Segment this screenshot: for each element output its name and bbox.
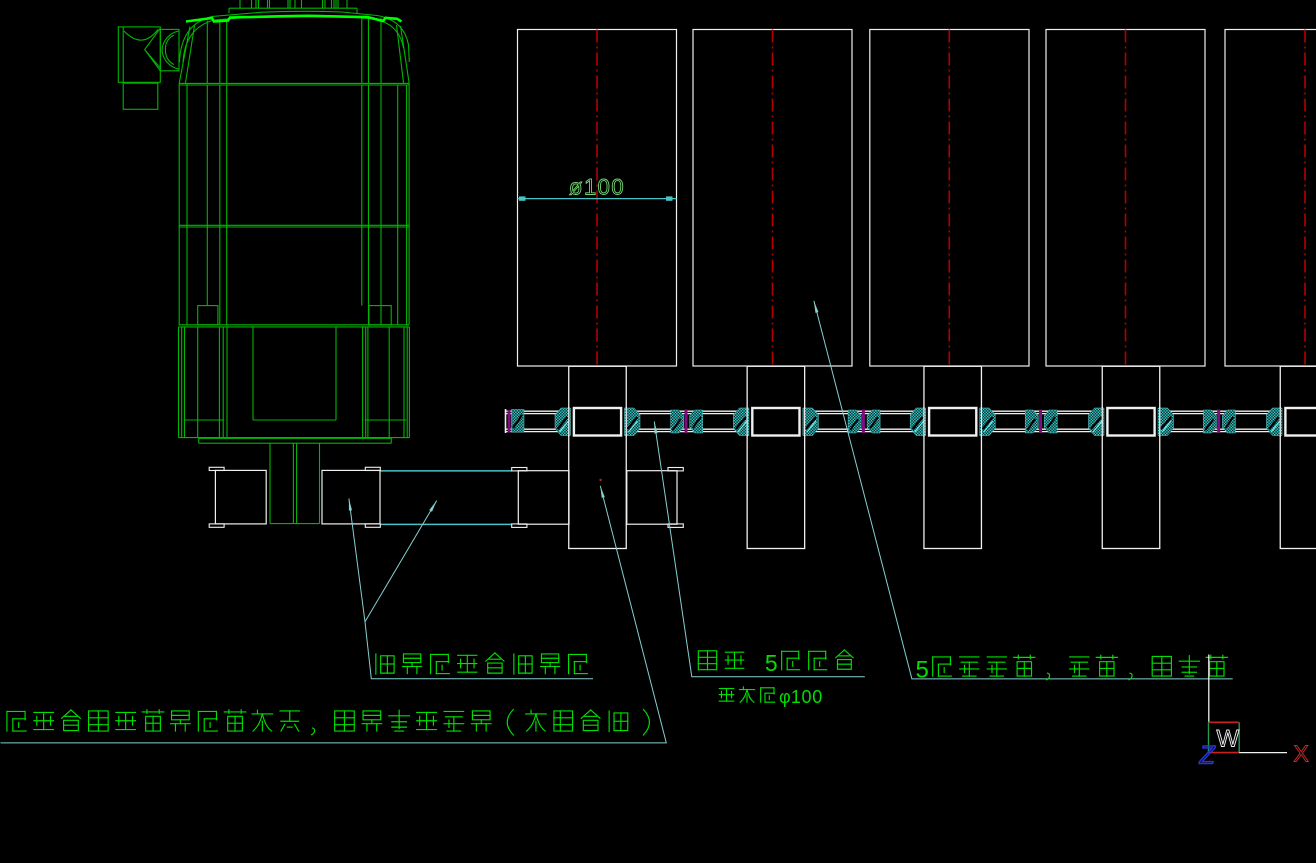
svg-text:φ: φ (779, 687, 791, 707)
svg-text:X: X (1294, 741, 1309, 767)
svg-text:ø100: ø100 (569, 175, 625, 200)
svg-text:W: W (1217, 726, 1240, 753)
svg-text:0: 0 (802, 687, 812, 707)
svg-text:5: 5 (765, 650, 778, 676)
svg-text:5: 5 (916, 656, 929, 683)
svg-text:Z: Z (1199, 742, 1216, 770)
svg-text:1: 1 (791, 687, 801, 707)
svg-text:0: 0 (812, 687, 822, 707)
